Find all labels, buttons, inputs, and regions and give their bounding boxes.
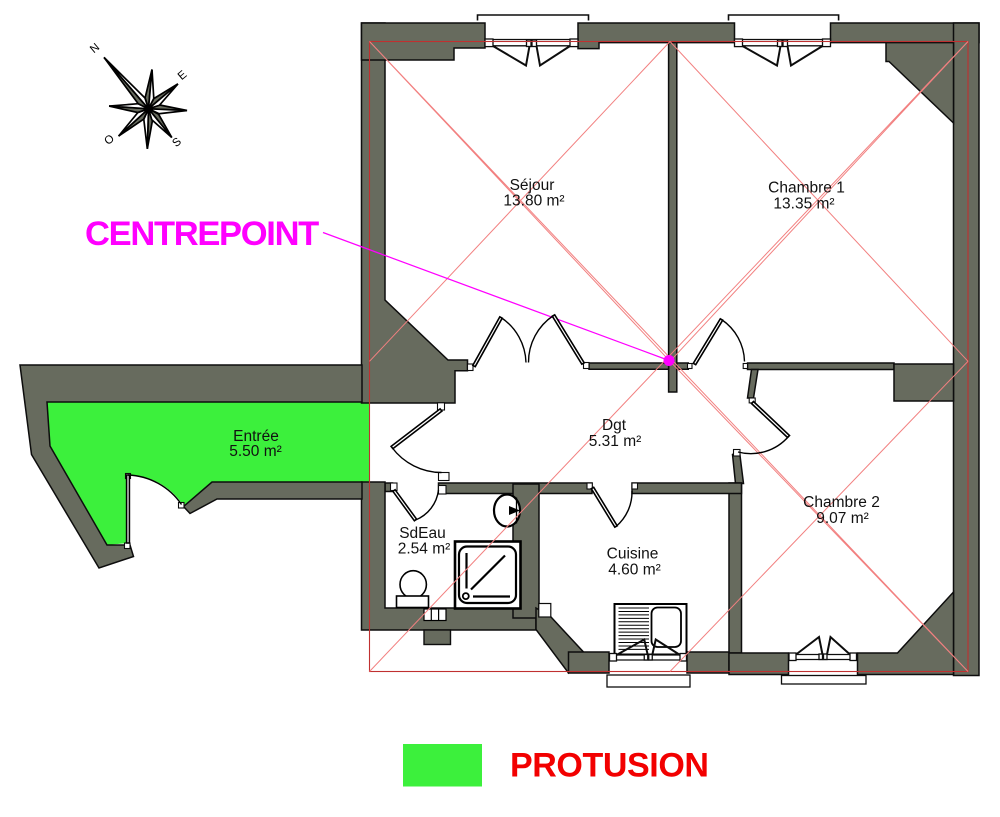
svg-text:E: E	[176, 68, 190, 82]
svg-text:S: S	[170, 135, 184, 149]
svg-text:5.50 m²: 5.50 m²	[229, 443, 282, 460]
svg-text:CENTREPOINT: CENTREPOINT	[85, 215, 319, 253]
svg-text:Séjour: Séjour	[510, 177, 555, 194]
svg-text:SdEau: SdEau	[399, 525, 446, 542]
svg-text:2.54 m²: 2.54 m²	[398, 541, 451, 558]
svg-text:O: O	[102, 133, 117, 148]
svg-text:Chambre 1: Chambre 1	[768, 180, 845, 197]
svg-text:Dgt: Dgt	[602, 417, 627, 434]
svg-text:13.80 m²: 13.80 m²	[503, 193, 564, 210]
svg-text:Cuisine: Cuisine	[607, 546, 659, 563]
svg-text:Chambre 2: Chambre 2	[803, 494, 880, 511]
svg-text:N: N	[88, 41, 102, 56]
svg-text:4.60 m²: 4.60 m²	[608, 562, 661, 579]
svg-text:9.07 m²: 9.07 m²	[816, 510, 869, 527]
svg-text:5.31 m²: 5.31 m²	[589, 433, 642, 450]
svg-text:PROTUSION: PROTUSION	[510, 747, 709, 785]
svg-text:13.35 m²: 13.35 m²	[773, 196, 834, 213]
